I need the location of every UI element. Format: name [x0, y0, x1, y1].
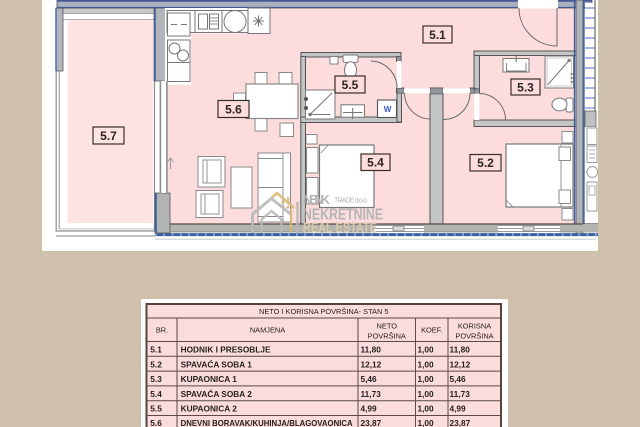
- svg-text:11,73: 11,73: [361, 389, 382, 399]
- svg-text:5.7: 5.7: [100, 129, 117, 143]
- svg-text:KORISNA: KORISNA: [458, 322, 491, 331]
- svg-text:4,99: 4,99: [450, 404, 467, 414]
- svg-text:1,00: 1,00: [418, 404, 435, 414]
- svg-text:SPAVAĆA SOBA 1: SPAVAĆA SOBA 1: [181, 358, 253, 369]
- svg-text:5.2: 5.2: [150, 359, 162, 369]
- svg-text:NENIK: NENIK: [303, 192, 331, 207]
- svg-text:5.5: 5.5: [342, 78, 359, 92]
- svg-text:11,80: 11,80: [450, 345, 471, 355]
- svg-text:KOEF.: KOEF.: [421, 326, 442, 335]
- svg-text:12,12: 12,12: [450, 359, 471, 369]
- svg-text:KUPAONICA 2: KUPAONICA 2: [181, 404, 238, 414]
- svg-text:5.4: 5.4: [367, 156, 384, 170]
- svg-text:5.6: 5.6: [150, 418, 162, 427]
- svg-text:5.5: 5.5: [150, 404, 162, 414]
- svg-text:5.1: 5.1: [429, 28, 446, 42]
- svg-text:HODNIK I PRESOBLJE: HODNIK I PRESOBLJE: [181, 345, 271, 355]
- svg-text:5,46: 5,46: [450, 374, 467, 384]
- svg-text:DNEVNI BORAVAK/KUHINJA/BLAGOVA: DNEVNI BORAVAK/KUHINJA/BLAGOVAONICA: [181, 418, 353, 427]
- svg-text:11,73: 11,73: [450, 389, 471, 399]
- svg-text:11,80: 11,80: [361, 345, 382, 355]
- svg-text:1,00: 1,00: [418, 345, 435, 355]
- svg-text:NETO: NETO: [377, 322, 398, 331]
- svg-text:1,00: 1,00: [418, 389, 435, 399]
- svg-text:REAL ESTATE: REAL ESTATE: [303, 221, 377, 237]
- svg-text:W: W: [384, 105, 392, 114]
- svg-text:23,87: 23,87: [450, 418, 471, 427]
- svg-text:5.4: 5.4: [150, 389, 162, 399]
- svg-text:NETO I KORISNA POVRŠINA- STAN: NETO I KORISNA POVRŠINA- STAN 5: [259, 307, 389, 316]
- svg-text:5.3: 5.3: [150, 374, 162, 384]
- svg-text:POVRŠINA: POVRŠINA: [455, 331, 493, 340]
- svg-text:5.1: 5.1: [150, 345, 162, 355]
- svg-text:5.2: 5.2: [477, 156, 494, 170]
- svg-text:BR.: BR.: [156, 326, 168, 335]
- svg-text:POVRŠINA: POVRŠINA: [368, 331, 406, 340]
- svg-text:1,00: 1,00: [418, 418, 435, 427]
- svg-text:1,00: 1,00: [418, 374, 435, 384]
- svg-text:1,00: 1,00: [418, 359, 435, 369]
- svg-text:NAMJENA: NAMJENA: [250, 326, 285, 335]
- svg-text:KUPAONICA 1: KUPAONICA 1: [181, 374, 238, 384]
- svg-text:SPAVAĆA SOBA 2: SPAVAĆA SOBA 2: [181, 388, 253, 399]
- svg-text:23,87: 23,87: [361, 418, 382, 427]
- svg-text:4,99: 4,99: [361, 404, 378, 414]
- svg-text:5,46: 5,46: [361, 374, 378, 384]
- svg-text:12,12: 12,12: [361, 359, 382, 369]
- svg-text:TRADE d.o.o.: TRADE d.o.o.: [334, 198, 368, 205]
- svg-text:5.6: 5.6: [225, 102, 242, 116]
- svg-text:5.3: 5.3: [517, 80, 534, 94]
